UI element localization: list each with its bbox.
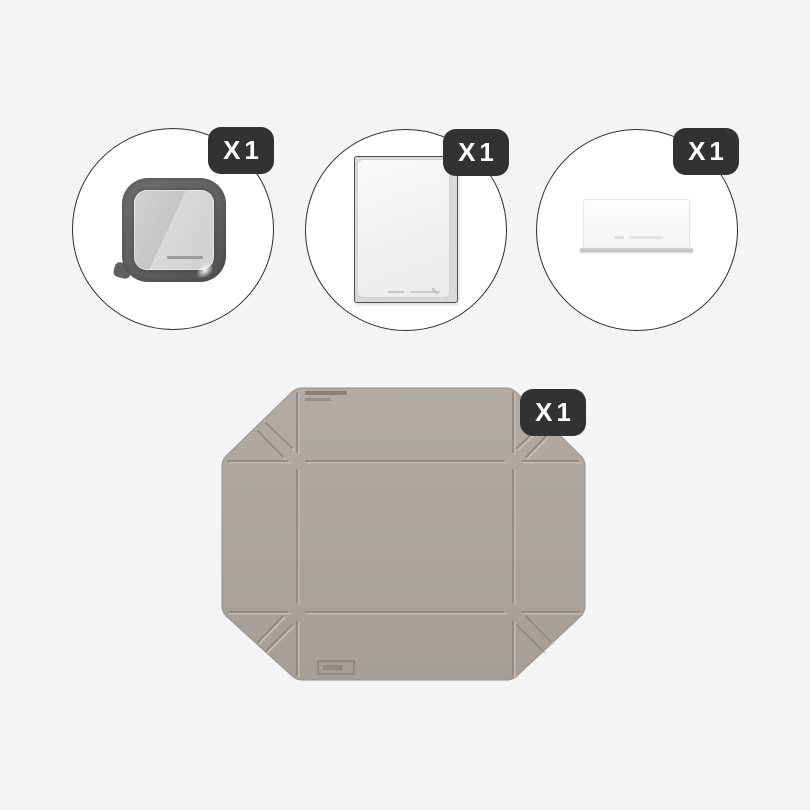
container-lid — [134, 190, 214, 270]
divider-plate-fine-print — [614, 236, 624, 239]
mat-brand-stamp-text — [323, 665, 343, 670]
mat-fine-print — [305, 398, 331, 401]
quantity-badge: X1 — [520, 389, 586, 436]
lid-fine-print — [167, 256, 203, 259]
quantity-badge: X1 — [443, 129, 509, 176]
divider-plate-fine-print — [629, 236, 663, 239]
clear-lid-product — [354, 156, 458, 303]
clear-lid-fine-print — [388, 291, 404, 293]
divider-plate-product — [583, 199, 690, 248]
mat-fine-print — [305, 391, 347, 395]
quantity-badge: X1 — [208, 127, 274, 174]
divider-plate-base-edge — [580, 248, 693, 252]
quantity-badge: X1 — [673, 128, 739, 175]
package-contents-image: X1 X1 X1 X1 — [0, 0, 810, 810]
clear-lid-face — [357, 159, 450, 298]
